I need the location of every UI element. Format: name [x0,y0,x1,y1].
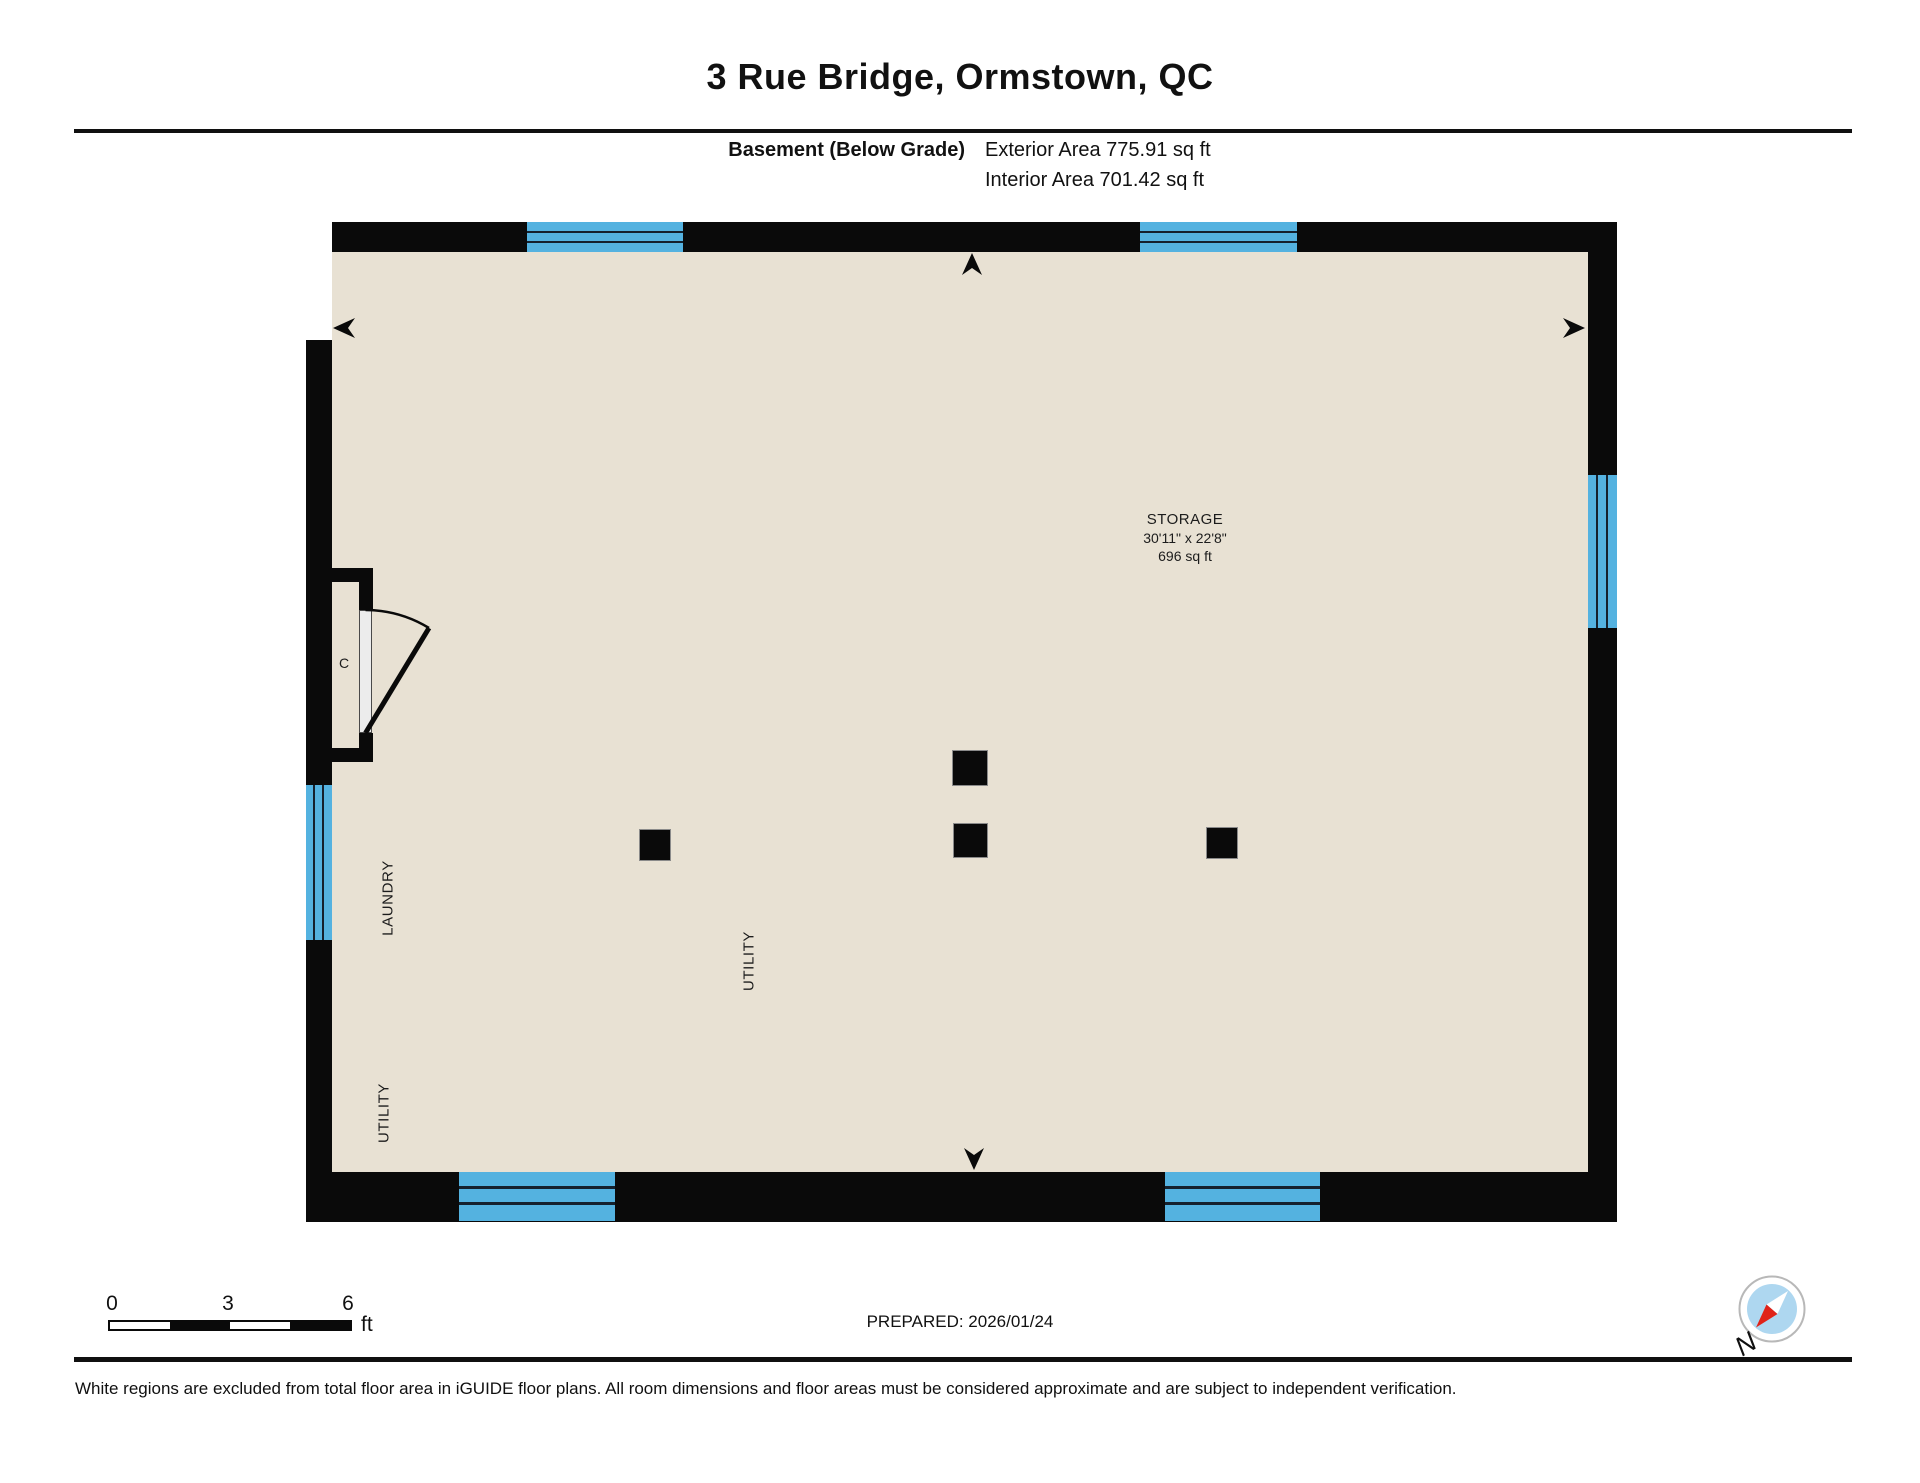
floor-plan-page: 3 Rue Bridge, Ormstown, QC Basement (Bel… [0,0,1920,1483]
disclaimer-text: White regions are excluded from total fl… [75,1379,1457,1399]
window-top-left [527,222,683,252]
prepared-date: PREPARED: 2026/01/24 [0,1312,1920,1332]
window-left [306,785,332,940]
support-post [1206,827,1238,859]
room-label-utility-left: UTILITY [376,1083,393,1143]
wall-left-lower [306,940,332,1222]
window-top-right [1140,222,1297,252]
window-right [1588,475,1617,628]
floor-area [332,252,1588,1172]
window-bottom-right [1165,1172,1320,1221]
opening-arrow-down-icon [964,1148,984,1170]
closet-label: C [339,655,349,671]
opening-arrow-right-icon [1563,318,1585,338]
room-label-laundry: LAUNDRY [380,860,397,936]
wall-left-upper [306,340,332,785]
support-post [953,823,988,858]
floor-plan: STORAGE 30'11" x 22'8" 696 sq ft C LAUND… [0,0,1920,1483]
storage-name: STORAGE [1035,511,1335,529]
storage-dimensions: 30'11" x 22'8" [1035,529,1335,547]
compass-icon: N [1732,1268,1822,1364]
wall-right [1588,222,1617,1222]
support-post [639,829,671,861]
door-swing-icon [340,595,460,755]
window-bottom-left [459,1172,615,1221]
room-label-utility-center: UTILITY [741,931,758,991]
opening-arrow-left-icon [333,318,355,338]
support-post [952,750,988,786]
storage-area: 696 sq ft [1035,547,1335,565]
opening-arrow-up-icon [962,253,982,275]
room-label-storage: STORAGE 30'11" x 22'8" 696 sq ft [1035,511,1335,565]
footer-divider [74,1357,1852,1362]
wall-top [332,222,1617,252]
